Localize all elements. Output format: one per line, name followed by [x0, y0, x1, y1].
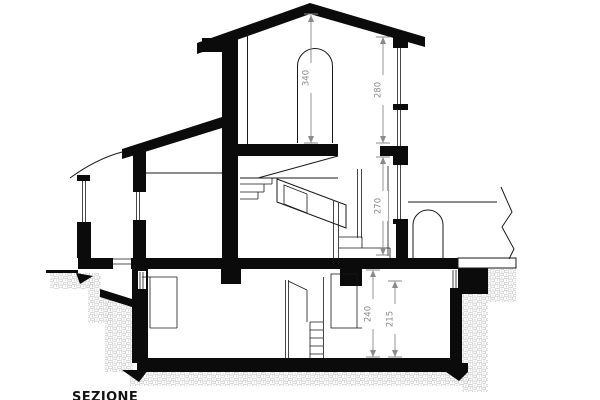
dim-label-215: 215 [386, 311, 396, 327]
railing-cap [77, 175, 90, 181]
right-retaining-block [458, 268, 488, 294]
slab-beam-a [221, 269, 241, 284]
right-terrace-slab [458, 258, 516, 268]
paper-background [0, 0, 600, 400]
drawing-title: SEZIONE [72, 390, 138, 400]
right-attic-window-transom [393, 104, 408, 110]
slab-beam-b [340, 269, 362, 286]
section-drawing: 340 280 270 240 215 SEZIONE [0, 0, 600, 400]
attic-floor-slab-left [238, 144, 338, 156]
dim-label-280: 280 [374, 82, 384, 98]
basement-right-wall [450, 288, 462, 363]
ground-slab-west [78, 258, 113, 269]
basement-floor-slab [137, 358, 462, 372]
central-bearing-wall [222, 36, 238, 263]
dim-label-270: 270 [374, 198, 384, 214]
right-wall-band [393, 156, 408, 165]
right-attic-wall-head [393, 32, 408, 48]
ground-slab-main [131, 258, 458, 269]
right-window-sill [393, 219, 408, 224]
dim-label-240: 240 [364, 306, 374, 322]
annex-wall-upper [133, 150, 146, 192]
left-eave [202, 38, 222, 52]
right-wall-lower [396, 224, 408, 259]
annex-wall-lower [133, 220, 146, 258]
attic-floor-slab-right [380, 146, 408, 156]
terrace-parapet [77, 222, 91, 258]
dim-label-340: 340 [302, 70, 312, 86]
ground-line-left [46, 270, 78, 273]
